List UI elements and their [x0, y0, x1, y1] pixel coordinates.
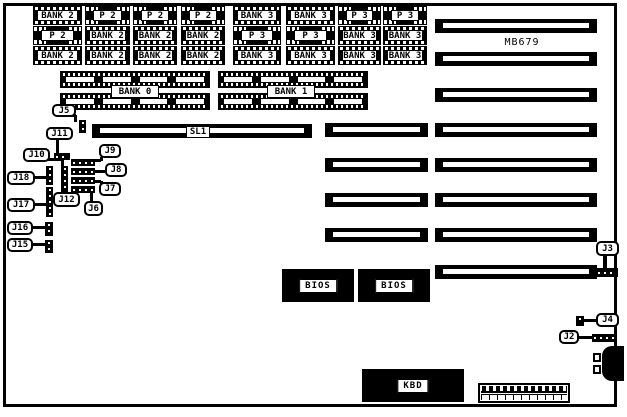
chip-label: BANK 3 [387, 30, 423, 41]
callout-tail-j9 [94, 159, 101, 162]
slot-sl1-label: SL1 [186, 126, 210, 138]
chip-pins-bottom [288, 21, 333, 24]
callout-tail-j8 [95, 170, 105, 173]
callout-tail-j5 [74, 115, 77, 122]
memory-chip-bank-2: BANK 2 [85, 46, 130, 65]
simm-chip [298, 99, 326, 104]
chip-pins-bottom [235, 61, 279, 64]
memory-chip-p-3: P 3 [286, 26, 335, 45]
expansion-slot-middle [325, 228, 428, 242]
simm-chip [334, 77, 362, 82]
jumper-callout-j12: J12 [53, 192, 80, 207]
jumper-pin-dots [73, 162, 93, 164]
expansion-slot-right [435, 123, 597, 137]
chip-pins-bottom [183, 61, 223, 64]
expansion-slot-right [435, 265, 597, 279]
j5-block [79, 120, 86, 133]
expansion-slot-right [435, 158, 597, 172]
slot-stripe [443, 269, 589, 274]
callout-tail-j16 [32, 226, 45, 229]
jumper-pin-dots [82, 122, 84, 131]
simm-chip [140, 99, 168, 104]
jumper-callout-j6: J6 [84, 201, 103, 216]
chip-pins-bottom [385, 61, 425, 64]
jumper-pin-dots [48, 224, 50, 234]
chip-pins-bottom [87, 61, 128, 64]
slot-stripe [443, 92, 589, 97]
slot-stripe [443, 56, 589, 61]
memory-chip-bank-2: BANK 2 [33, 46, 82, 65]
memory-chip-p-2: P 2 [33, 26, 82, 45]
chip-label: P 3 [346, 10, 373, 21]
bottom-pin-header [478, 383, 570, 403]
simm-chip [176, 99, 204, 104]
chip-label: BANK 2 [89, 30, 126, 41]
memory-chip-p-2: P 2 [85, 6, 130, 25]
memory-chip-bank-3: BANK 3 [286, 46, 335, 65]
din-pin [593, 353, 601, 362]
expansion-slot-right [435, 19, 597, 33]
memory-chip-bank-3: BANK 3 [383, 26, 427, 45]
slot-stripe [443, 232, 589, 237]
board-model-label: MB679 [500, 36, 544, 48]
jumper-pin-dots [48, 242, 50, 251]
jumper-callout-j3: J3 [596, 241, 619, 256]
memory-chip-bank-3: BANK 3 [286, 6, 335, 25]
slot-stripe [333, 232, 420, 237]
expansion-slot-right [435, 52, 597, 66]
callout-tail-j11 [56, 139, 59, 153]
memory-chip-bank-2: BANK 2 [181, 26, 225, 45]
slot-stripe [333, 197, 420, 202]
expansion-slot-right [435, 228, 597, 242]
header-pin-squares [481, 394, 567, 400]
ic-label: KBD [397, 379, 428, 393]
jumper-pin-dots [49, 168, 51, 183]
chip-pins-bottom [385, 41, 425, 44]
simm-chip [298, 77, 326, 82]
chip-label: BANK 2 [137, 30, 173, 41]
chip-label: BANK 2 [37, 10, 78, 21]
jumper-callout-j4: J4 [596, 313, 619, 327]
callout-tail-j17 [34, 203, 46, 206]
chip-label: P 3 [241, 30, 273, 41]
j18-block [46, 166, 53, 185]
simm-pin-dots [221, 73, 365, 76]
memory-chip-bank-2: BANK 2 [133, 46, 177, 65]
slot-stripe [443, 127, 589, 132]
simm-chip [261, 77, 289, 82]
memory-chip-bank-3: BANK 3 [383, 46, 427, 65]
j4-block [576, 316, 584, 326]
bank-label-bank-1: BANK 1 [267, 85, 315, 98]
simm-chip [224, 99, 252, 104]
simm-chip [176, 77, 204, 82]
jumper-pin-dots [579, 318, 581, 324]
ic-chip-bios: BIOS [358, 269, 430, 302]
memory-chip-bank-3: BANK 3 [338, 46, 381, 65]
expansion-slot-middle [325, 158, 428, 172]
chip-label: BANK 3 [290, 50, 331, 61]
simm-chip-row [66, 99, 204, 104]
expansion-slot-middle [325, 123, 428, 137]
simm-chip [103, 99, 131, 104]
memory-chip-p-2: P 2 [181, 6, 225, 25]
chip-label: P 2 [189, 10, 217, 21]
memory-chip-bank-2: BANK 2 [133, 26, 177, 45]
chip-label: BANK 2 [185, 30, 221, 41]
callout-tail-j3 [603, 255, 607, 268]
chip-pins-bottom [87, 41, 128, 44]
memory-chip-p-3: P 3 [338, 6, 381, 25]
bank-label-bank-0: BANK 0 [111, 85, 159, 98]
jumper-callout-j17: J17 [7, 198, 35, 212]
callout-tail-j10 [61, 158, 64, 166]
memory-chip-p-3: P 3 [233, 26, 281, 45]
simm-chip [261, 99, 289, 104]
callout-tail-j6 [90, 191, 93, 201]
chip-label: BANK 2 [37, 50, 78, 61]
j16-block [45, 222, 53, 236]
memory-chip-bank-2: BANK 2 [85, 26, 130, 45]
jumper-pin-dots [49, 189, 51, 215]
chip-pins-bottom [135, 61, 175, 64]
chip-label: BANK 3 [342, 50, 377, 61]
jumper-callout-j5: J5 [52, 104, 76, 117]
callout-tail-j18 [34, 176, 46, 179]
callout-tail-j4 [584, 319, 596, 322]
j7-block [71, 177, 95, 184]
ic-chip-kbd: KBD [362, 369, 464, 402]
header-pin-dots [481, 386, 567, 393]
chip-label: BANK 3 [342, 30, 377, 41]
simm-pin-dots [63, 73, 207, 76]
chip-label: BANK 3 [237, 50, 277, 61]
jumper-callout-j11: J11 [46, 127, 73, 140]
chip-label: P 2 [93, 10, 122, 21]
jumper-pin-dots [73, 171, 93, 173]
jumper-pin-dots [73, 180, 93, 182]
chip-label: BANK 3 [237, 10, 277, 21]
chip-label: P 2 [41, 30, 74, 41]
slot-stripe [443, 197, 589, 202]
simm-chip [224, 77, 252, 82]
memory-chip-bank-2: BANK 2 [33, 6, 82, 25]
slot-stripe [333, 127, 420, 132]
din-pin [593, 365, 601, 374]
slot-stripe [333, 162, 420, 167]
expansion-slot-right [435, 88, 597, 102]
simm-pin-dots [63, 105, 207, 108]
j15-block [45, 240, 53, 253]
simm-chip [103, 77, 131, 82]
jumper-callout-j8: J8 [105, 163, 127, 177]
simm-chip-row [66, 77, 204, 82]
j17-block [46, 187, 53, 217]
chip-label: P 2 [141, 10, 169, 21]
ic-chip-bios: BIOS [282, 269, 354, 302]
chip-pins-bottom [135, 41, 175, 44]
jumper-callout-j9: J9 [99, 144, 121, 158]
j3-block [596, 268, 618, 277]
jumper-callout-j10: J10 [23, 148, 50, 162]
memory-chip-bank-3: BANK 3 [233, 46, 281, 65]
memory-chip-bank-2: BANK 2 [181, 46, 225, 65]
memory-chip-p-2: P 2 [133, 6, 177, 25]
jumper-pin-dots [598, 272, 616, 274]
simm-chip-row [224, 77, 362, 82]
jumper-callout-j16: J16 [7, 221, 33, 235]
j9-block [71, 159, 95, 166]
chip-label: P 3 [294, 30, 327, 41]
j8-block [71, 168, 95, 175]
simm-chip [334, 99, 362, 104]
jumper-pin-dots [594, 337, 615, 339]
chip-label: BANK 2 [137, 50, 173, 61]
chip-pins-bottom [340, 41, 379, 44]
j2-block [592, 334, 617, 342]
chip-label: BANK 3 [387, 50, 423, 61]
slot-stripe [443, 23, 589, 28]
chip-label: BANK 3 [290, 10, 331, 21]
callout-tail-j2 [578, 336, 592, 339]
jumper-callout-j7: J7 [99, 182, 121, 196]
chip-label: P 3 [391, 10, 419, 21]
motherboard-diagram: MB679 BANK 2P 2P 2P 2BANK 3BANK 3P 3P 3P… [0, 0, 627, 417]
jumper-callout-j2: J2 [559, 330, 579, 344]
chip-label: BANK 2 [89, 50, 126, 61]
chip-pins-bottom [288, 61, 333, 64]
memory-chip-p-3: P 3 [383, 6, 427, 25]
ic-label: BIOS [375, 279, 413, 293]
chip-pins-bottom [183, 41, 223, 44]
simm-chip [66, 77, 94, 82]
expansion-slot-right [435, 193, 597, 207]
expansion-slot-middle [325, 193, 428, 207]
simm-chip [140, 77, 168, 82]
simm-pin-dots [221, 105, 365, 108]
jumper-callout-j18: J18 [7, 171, 35, 185]
jumper-callout-j15: J15 [7, 238, 33, 252]
memory-chip-bank-3: BANK 3 [233, 6, 281, 25]
chip-pins-bottom [340, 61, 379, 64]
chip-pins-bottom [235, 21, 279, 24]
keyboard-din-connector [602, 346, 624, 381]
chip-label: BANK 2 [185, 50, 221, 61]
slot-stripe [443, 162, 589, 167]
memory-chip-bank-3: BANK 3 [338, 26, 381, 45]
chip-pins-bottom [35, 61, 80, 64]
ic-label: BIOS [299, 279, 337, 293]
chip-pins-bottom [35, 21, 80, 24]
simm-chip-row [224, 99, 362, 104]
callout-tail-j15 [32, 243, 45, 246]
